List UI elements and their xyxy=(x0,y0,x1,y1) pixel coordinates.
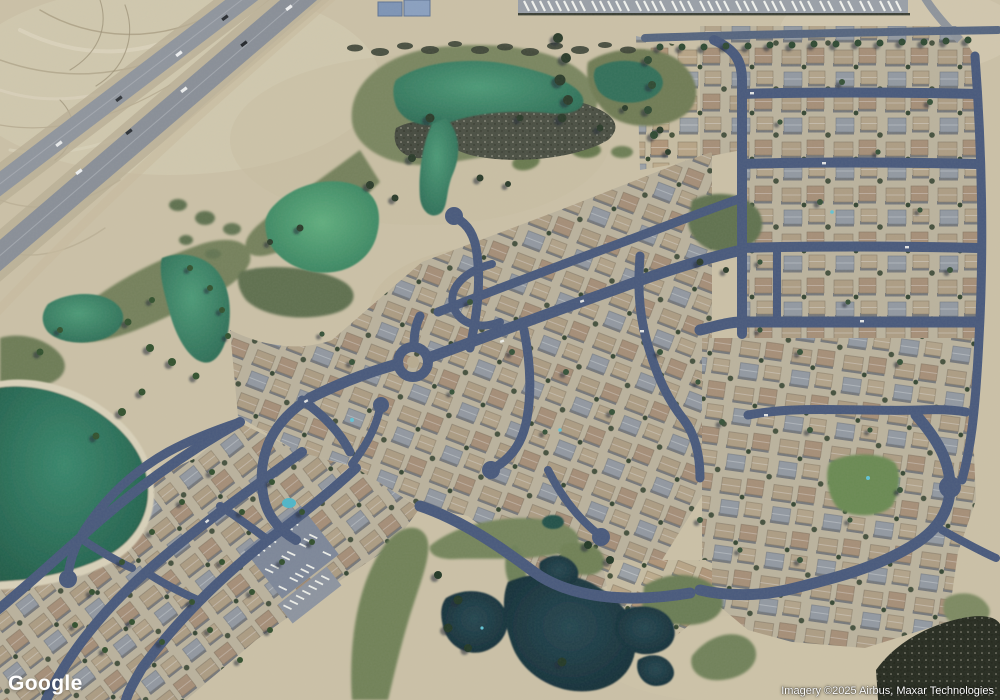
satellite-map-viewport: Google Imagery ©2025 Airbus, Maxar Techn… xyxy=(0,0,1000,700)
satellite-map-canvas[interactable] xyxy=(0,0,1000,700)
imagery-grain xyxy=(0,0,1000,700)
imagery-attribution: Imagery ©2025 Airbus, Maxar Technologies xyxy=(781,685,994,697)
google-logo[interactable]: Google xyxy=(8,672,83,696)
